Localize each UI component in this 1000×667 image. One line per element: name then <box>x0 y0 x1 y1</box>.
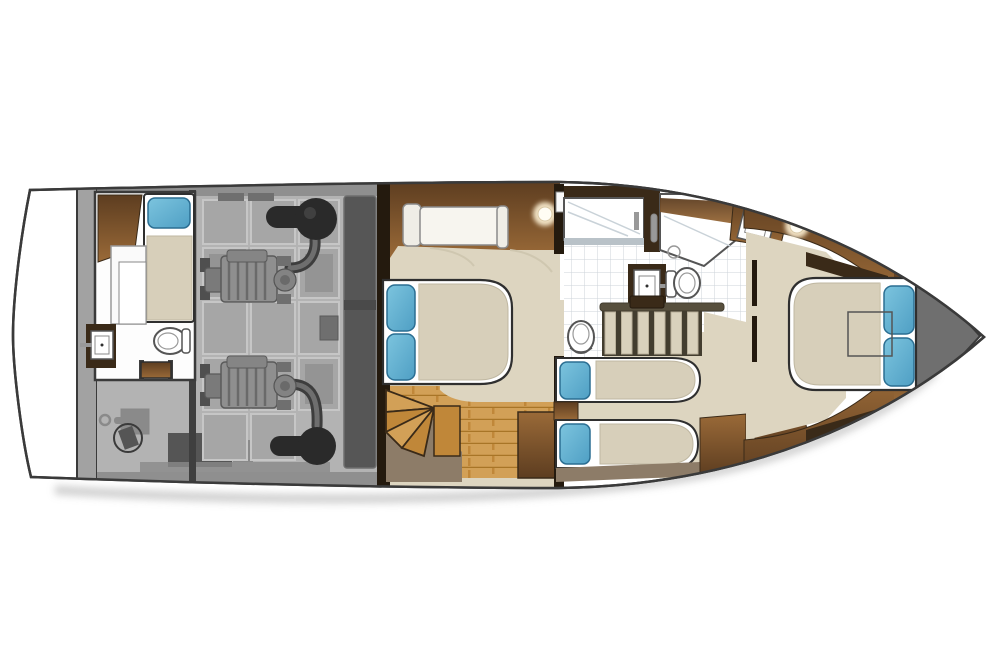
fuel-tank-band <box>344 300 376 310</box>
exhaust-muffler <box>298 427 336 465</box>
faucet <box>80 343 92 347</box>
sink-drain <box>101 344 104 347</box>
stair-tread <box>655 312 666 354</box>
blue-pillow <box>560 424 590 464</box>
berth-mattress <box>147 236 192 320</box>
sofa-armrest <box>497 206 508 248</box>
toilet-tank <box>182 329 190 353</box>
seat-cushion <box>119 262 146 324</box>
muffler-highlight <box>304 207 316 219</box>
stair-tread <box>605 312 616 354</box>
stair-tread <box>638 312 649 354</box>
blue-pillow <box>387 285 415 331</box>
faucet-handle <box>771 204 780 209</box>
sofa-armrest <box>403 204 421 246</box>
ceiling-light <box>538 207 552 221</box>
tub-handle <box>634 212 639 230</box>
entry-step <box>141 362 171 378</box>
bathtub <box>564 198 644 240</box>
wall-segment <box>752 316 757 362</box>
vent <box>248 193 274 201</box>
sink-drain <box>646 285 649 288</box>
blue-pillow <box>387 334 415 380</box>
cabinet <box>518 412 560 478</box>
stringer <box>140 462 330 472</box>
stair-newel <box>630 296 664 308</box>
fuel-tank <box>344 196 376 468</box>
toilet <box>154 328 186 354</box>
stair-tread <box>622 312 633 354</box>
forward-stateroom <box>744 186 980 482</box>
towel-bar <box>651 214 657 242</box>
nightstand <box>554 402 578 420</box>
tub-rim <box>564 238 644 245</box>
toilet <box>568 321 594 353</box>
berth-mattress <box>600 424 693 464</box>
stair-tread <box>688 312 699 354</box>
faucet <box>763 199 770 210</box>
crew-cabin <box>80 192 195 380</box>
master-stateroom <box>383 181 560 488</box>
valve-handle <box>114 417 132 424</box>
carpet-curve <box>440 386 560 402</box>
duvet <box>794 283 880 385</box>
berth-mattress <box>596 361 695 399</box>
blue-pillow <box>148 198 190 228</box>
yacht-floorplan-canvas <box>0 0 1000 667</box>
vent <box>218 193 244 201</box>
stair-tread <box>671 312 682 354</box>
equipment-box <box>320 316 338 340</box>
exhaust-muffler <box>295 198 337 240</box>
blue-pillow <box>884 286 914 334</box>
blue-pillow <box>884 338 914 386</box>
duvet <box>419 284 508 380</box>
sofa <box>420 207 502 245</box>
wall-segment <box>752 260 757 306</box>
blue-pillow <box>560 362 590 399</box>
